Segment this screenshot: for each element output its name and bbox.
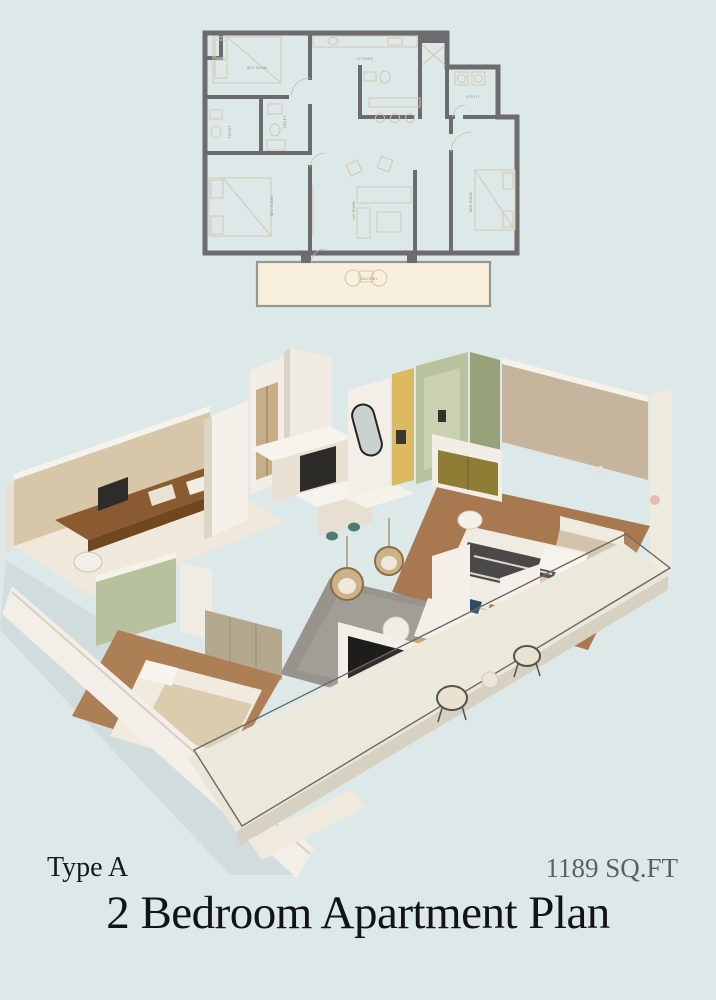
room-label: TOILET <box>283 115 287 128</box>
type-label: Type A <box>47 852 128 884</box>
room-label: LIV ROOM <box>352 201 356 219</box>
room-label: BED ROOM <box>469 192 473 212</box>
area-label: 1189 SQ.FT <box>545 853 678 884</box>
door-arcs <box>291 78 471 263</box>
plan-room-labels: BED ROOM TOILET TOILET KITCHEN UTILITY B… <box>228 57 481 281</box>
shaft <box>422 35 445 43</box>
room-label: BED ROOM <box>270 196 274 216</box>
room-label: UTILITY <box>466 95 481 99</box>
room-label: TOILET <box>228 125 232 138</box>
brochure-page: BED ROOM TOILET TOILET KITCHEN UTILITY B… <box>0 0 716 1000</box>
floor-plan-2d: BED ROOM TOILET TOILET KITCHEN UTILITY B… <box>183 20 545 322</box>
room-label: KITCHEN <box>357 57 374 61</box>
apartment-3d-render <box>0 330 716 878</box>
page-title: 2 Bedroom Apartment Plan <box>0 886 716 940</box>
room-label: BED ROOM <box>247 66 267 70</box>
room-label: BALCONY <box>360 277 378 281</box>
